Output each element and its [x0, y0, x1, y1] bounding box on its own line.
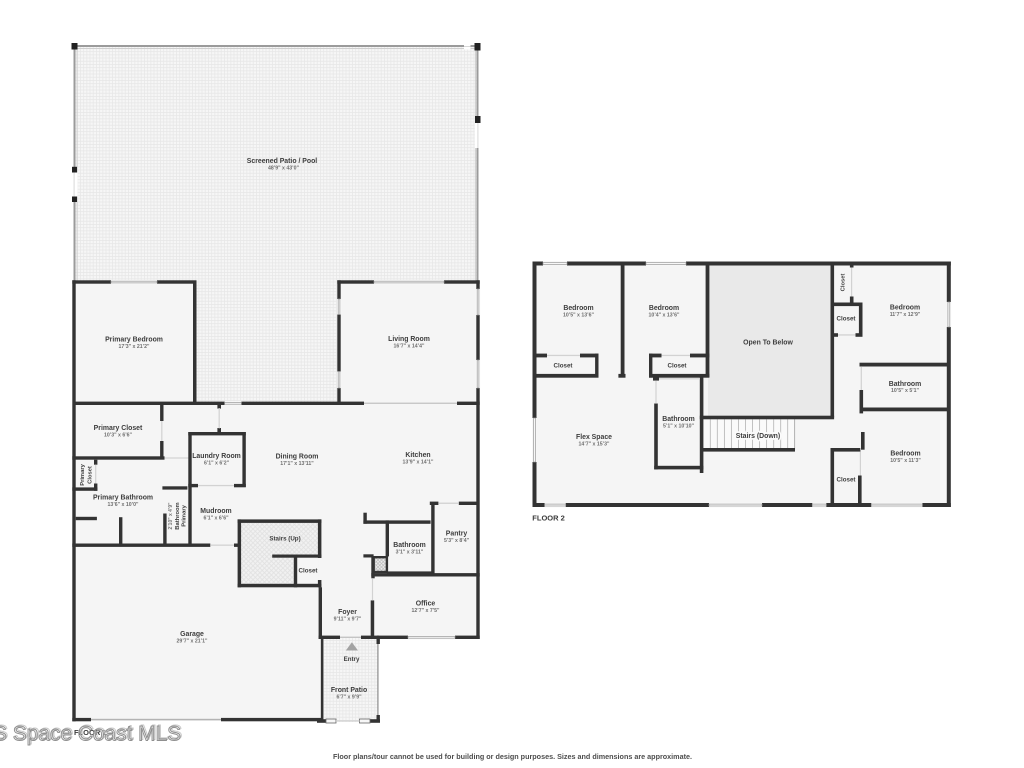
svg-text:Dining Room: Dining Room: [276, 454, 319, 461]
svg-text:Front Patio: Front Patio: [331, 687, 367, 694]
svg-text:Entry: Entry: [344, 656, 360, 663]
svg-text:Primary: Primary: [182, 504, 188, 526]
svg-text:10’3" x 6’6": 10’3" x 6’6": [104, 432, 133, 438]
svg-text:5’1" x 10’10": 5’1" x 10’10": [663, 424, 694, 430]
svg-text:17’3" x 21’2": 17’3" x 21’2": [119, 344, 150, 350]
svg-text:Closet: Closet: [841, 274, 847, 292]
svg-text:Mudroom: Mudroom: [200, 508, 231, 515]
svg-text:12’7" x 7’5": 12’7" x 7’5": [412, 608, 441, 614]
svg-text:17’1" x 13’11": 17’1" x 13’11": [280, 461, 314, 467]
svg-text:Closet: Closet: [837, 316, 856, 323]
svg-text:Closet: Closet: [837, 476, 856, 483]
svg-text:Pantry: Pantry: [446, 531, 468, 538]
svg-text:10’5" x 5’1": 10’5" x 5’1": [891, 388, 920, 394]
svg-text:Primary Bedroom: Primary Bedroom: [105, 337, 163, 344]
svg-text:Laundry Room: Laundry Room: [192, 453, 241, 460]
svg-text:3’1" x 3’11": 3’1" x 3’11": [396, 549, 424, 555]
svg-text:Screened Patio / Pool: Screened Patio / Pool: [247, 158, 318, 165]
svg-text:Open To Below: Open To Below: [743, 340, 793, 347]
svg-text:Bathroom: Bathroom: [889, 381, 922, 388]
svg-text:13’9" x 14’1": 13’9" x 14’1": [403, 459, 434, 465]
svg-text:10’4" x 13’6": 10’4" x 13’6": [649, 312, 680, 318]
svg-text:Closet: Closet: [668, 363, 687, 370]
svg-text:Closet: Closet: [554, 363, 573, 370]
svg-text:6’7" x 9’9": 6’7" x 9’9": [336, 694, 362, 700]
svg-text:Bedroom: Bedroom: [890, 305, 920, 312]
svg-text:Bathroom: Bathroom: [393, 542, 426, 549]
svg-text:13’6" x 10’0": 13’6" x 10’0": [108, 502, 139, 508]
svg-text:Flex Space: Flex Space: [576, 434, 612, 441]
svg-text:10’5" x 11’3": 10’5" x 11’3": [890, 458, 921, 464]
svg-text:6’1" x 6’2": 6’1" x 6’2": [204, 460, 230, 466]
svg-text:S Space Coast MLS: S Space Coast MLS: [0, 723, 181, 746]
svg-text:16’7" x 14’4": 16’7" x 14’4": [394, 344, 425, 350]
svg-text:Bedroom: Bedroom: [649, 305, 679, 312]
svg-text:Foyer: Foyer: [338, 609, 357, 616]
svg-text:Bedroom: Bedroom: [890, 451, 920, 458]
svg-text:FLOOR 2: FLOOR 2: [532, 514, 565, 523]
svg-text:Primary Closet: Primary Closet: [94, 425, 143, 432]
svg-text:Bathroom: Bathroom: [175, 502, 181, 529]
svg-text:9’11" x 9’7": 9’11" x 9’7": [334, 616, 362, 622]
svg-text:Office: Office: [416, 601, 436, 608]
svg-text:Bathroom: Bathroom: [662, 416, 695, 423]
svg-text:29’7" x 21’1": 29’7" x 21’1": [177, 638, 208, 644]
svg-text:Floor plans/tour cannot be use: Floor plans/tour cannot be used for buil…: [333, 754, 692, 761]
svg-text:Primary Bathroom: Primary Bathroom: [93, 495, 153, 502]
svg-text:14’7" x 15’3": 14’7" x 15’3": [579, 442, 610, 448]
svg-text:Kitchen: Kitchen: [405, 452, 430, 459]
svg-text:Closet: Closet: [299, 568, 318, 575]
svg-text:Stairs (Down): Stairs (Down): [736, 433, 780, 440]
svg-text:2’10" x 4’9": 2’10" x 4’9": [168, 502, 174, 530]
svg-text:11’7" x 12’9": 11’7" x 12’9": [890, 312, 921, 318]
svg-text:Stairs (Up): Stairs (Up): [269, 536, 300, 543]
svg-text:Bedroom: Bedroom: [563, 305, 593, 312]
svg-text:Primary: Primary: [80, 463, 86, 485]
svg-text:Closet: Closet: [88, 466, 94, 484]
svg-text:5’3" x 8’4": 5’3" x 8’4": [444, 538, 470, 544]
svg-text:10’5" x 13’6": 10’5" x 13’6": [563, 312, 594, 318]
svg-text:Living Room: Living Room: [388, 336, 430, 343]
svg-text:6’1" x 6’6": 6’1" x 6’6": [203, 515, 229, 521]
svg-text:Garage: Garage: [180, 631, 204, 638]
svg-text:48’9" x 43’0": 48’9" x 43’0": [268, 166, 299, 172]
